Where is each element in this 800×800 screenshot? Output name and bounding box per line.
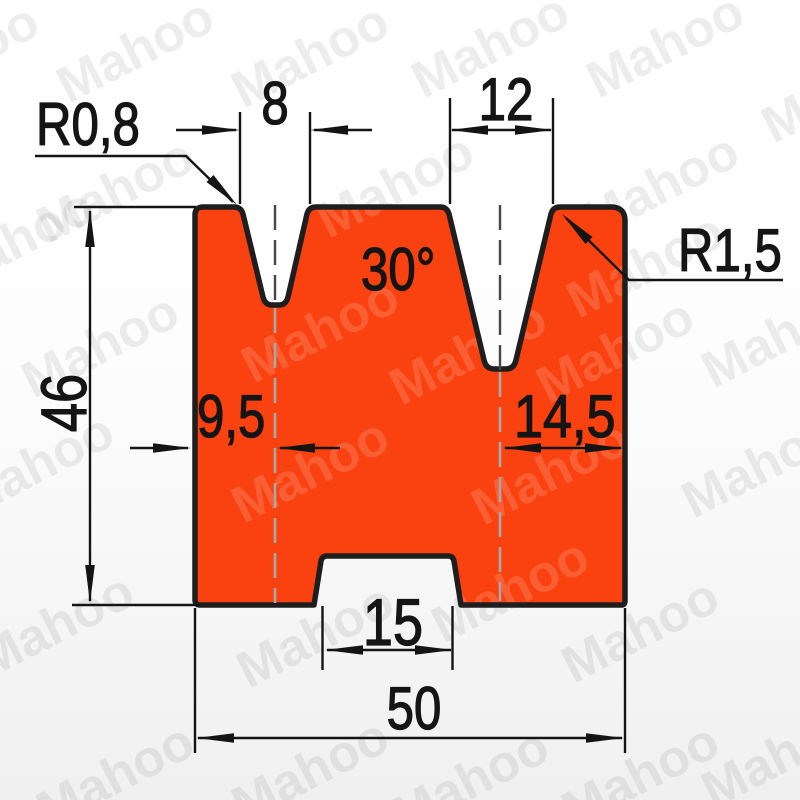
svg-text:8: 8 (261, 69, 288, 137)
svg-text:46: 46 (29, 374, 100, 432)
svg-text:Mahoo: Mahoo (223, 707, 399, 800)
svg-text:9,5: 9,5 (197, 382, 265, 450)
svg-text:Mahoo: Mahoo (673, 402, 800, 530)
svg-text:Mahoo: Mahoo (753, 27, 800, 155)
svg-text:14,5: 14,5 (514, 383, 616, 450)
svg-text:R1,5: R1,5 (678, 216, 782, 284)
svg-text:Mahoo: Mahoo (223, 0, 399, 120)
svg-text:30°: 30° (361, 235, 435, 303)
svg-text:Mahoo: Mahoo (693, 272, 800, 400)
svg-text:Mahoo: Mahoo (28, 712, 204, 800)
svg-text:12: 12 (479, 65, 534, 133)
svg-text:50: 50 (387, 674, 442, 742)
svg-text:Mahoo: Mahoo (578, 0, 754, 110)
svg-text:Mahoo: Mahoo (0, 562, 143, 690)
svg-text:R0,8: R0,8 (36, 90, 140, 158)
svg-text:15: 15 (363, 585, 423, 659)
